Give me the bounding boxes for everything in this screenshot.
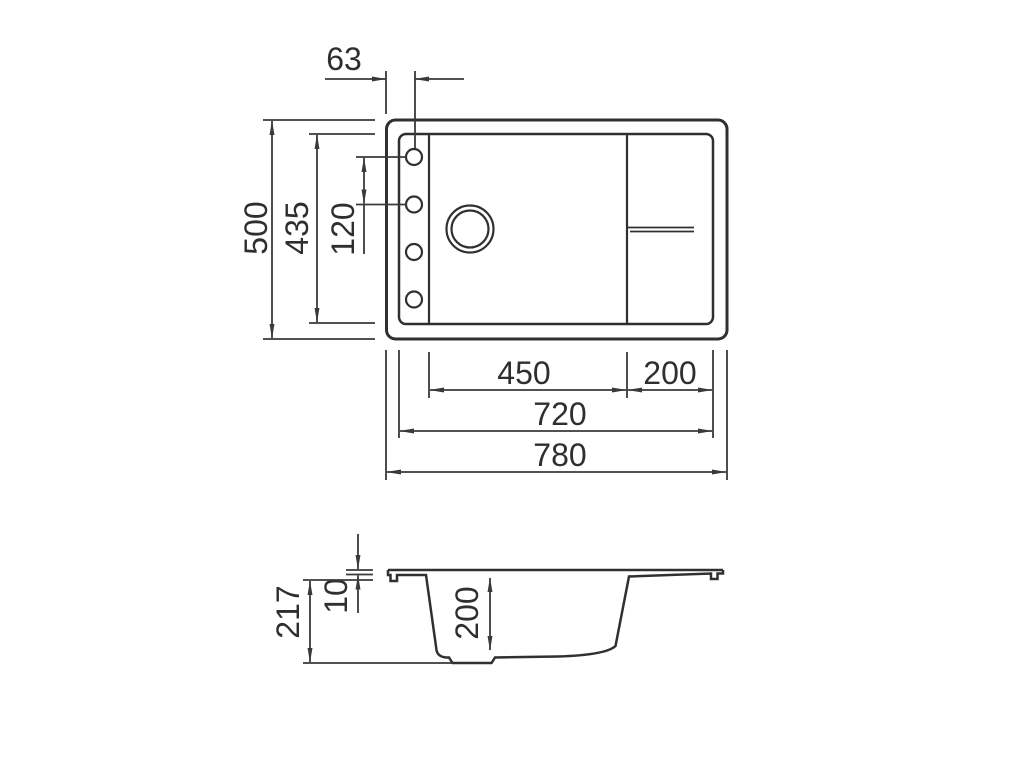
tap-hole-4 [406, 292, 422, 308]
dim-tap-hole-offset: 63 [325, 41, 464, 148]
dim-rim-thickness: 10 [318, 534, 373, 614]
dim-label-200-depth: 200 [449, 586, 485, 639]
side-view-dimensions: 10 217 200 [270, 534, 490, 663]
dim-label-780: 780 [533, 437, 586, 473]
dim-overall-width: 780 [387, 437, 726, 473]
dim-bowl-width: 450 [430, 355, 626, 391]
dim-label-10: 10 [318, 578, 354, 614]
dim-label-450: 450 [497, 355, 550, 391]
dim-label-120: 120 [325, 202, 361, 255]
dim-label-720: 720 [533, 396, 586, 432]
top-view-dimensions: 63 500 435 120 [238, 41, 727, 480]
tap-hole-1 [406, 149, 422, 165]
dim-bowl-depth: 200 [449, 578, 490, 650]
dim-overall-height: 217 [270, 580, 453, 663]
dim-label-63: 63 [326, 41, 362, 77]
top-view [387, 120, 728, 339]
drain-hole-inner [452, 211, 489, 248]
dim-label-200: 200 [643, 355, 696, 391]
dim-inner-width: 720 [400, 396, 712, 432]
drain-hole-outer [447, 206, 494, 253]
dim-drainboard-width: 200 [628, 355, 712, 391]
side-view [388, 570, 723, 663]
tap-hole-2 [406, 197, 422, 213]
dim-tap-hole-spacing: 120 [325, 157, 406, 256]
dim-label-217: 217 [270, 585, 306, 638]
sink-technical-drawing: 63 500 435 120 [0, 0, 1024, 768]
technical-drawing-svg: 63 500 435 120 [0, 0, 1024, 768]
dim-label-435: 435 [279, 201, 315, 254]
sink-section-profile [388, 570, 723, 663]
sink-outer-edge [387, 120, 728, 339]
tap-hole-3 [406, 244, 422, 260]
dim-label-500: 500 [238, 201, 274, 254]
